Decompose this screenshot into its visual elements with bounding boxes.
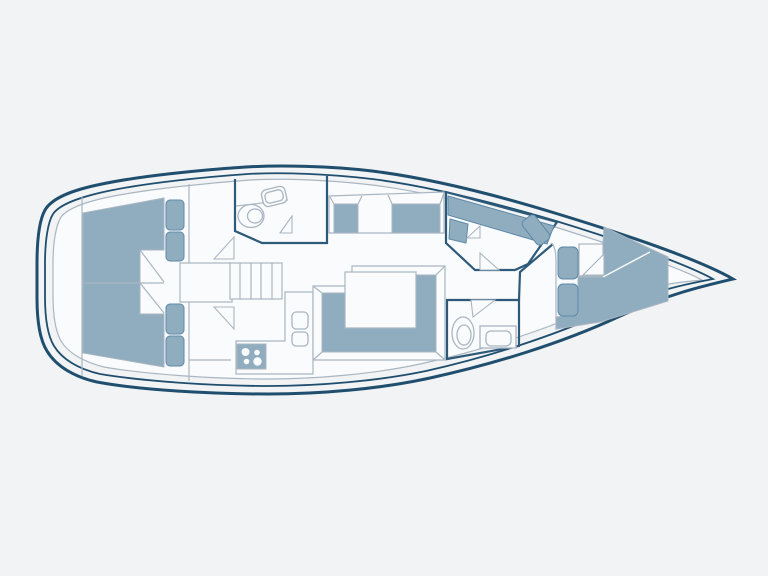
stove-burner — [254, 350, 260, 356]
bench-cushion — [392, 204, 440, 233]
forward-head-toilet-bowl — [457, 325, 471, 345]
pillow — [166, 304, 184, 334]
companionway — [230, 263, 282, 299]
engine-box — [180, 263, 232, 302]
stove — [237, 344, 266, 369]
pillow — [166, 200, 184, 230]
pillow — [558, 284, 578, 316]
galley-sink-basin — [292, 332, 308, 346]
stove-burner — [253, 357, 261, 365]
stairs — [230, 263, 282, 299]
stove-burner — [242, 348, 250, 356]
salon-table — [345, 272, 416, 328]
galley-sink-basin — [292, 312, 308, 329]
bench-cushion — [334, 204, 358, 233]
yacht-floor-plan — [0, 0, 768, 576]
forward-head-sink — [486, 331, 511, 346]
stove-burner — [244, 359, 250, 365]
pillow — [166, 232, 184, 261]
aft-head-toilet — [238, 205, 264, 228]
pillow — [166, 336, 184, 366]
pillow — [558, 247, 578, 279]
